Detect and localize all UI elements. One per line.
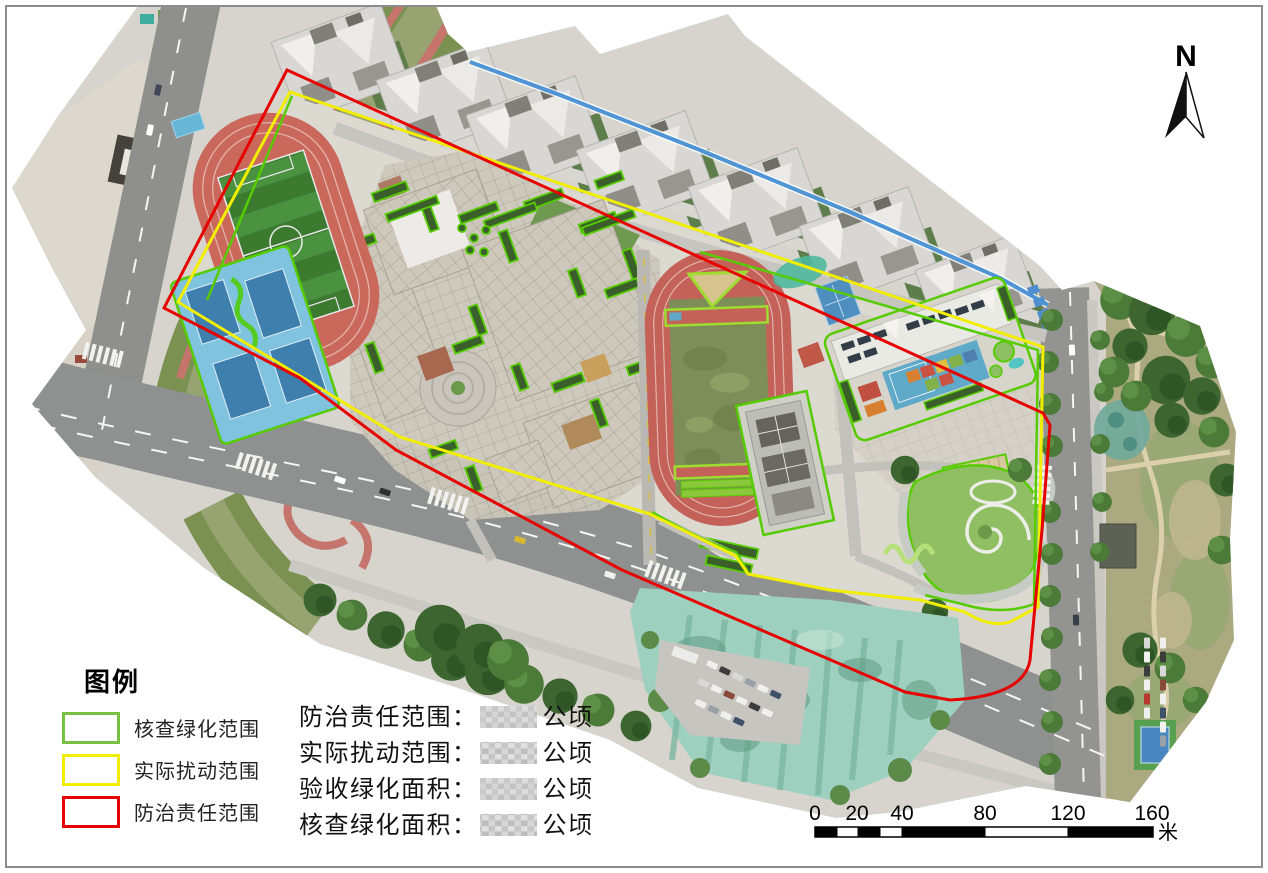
stat-row-verified-greening: 核查绿化面积：公顷 — [299, 808, 594, 844]
scale-tick: 120 — [1050, 802, 1085, 825]
area-statistics: 防治责任范围：公顷 实际扰动范围：公顷 验收绿化面积：公顷 核查绿化面积：公顷 — [299, 700, 594, 844]
censored-value — [480, 814, 537, 836]
scale-bar: 0 20 40 80 120 160 米 — [809, 802, 1178, 844]
stat-row-accepted-greening: 验收绿化面积：公顷 — [299, 772, 594, 808]
stat-label: 核查绿化面积： — [299, 813, 478, 839]
legend: 图例 核查绿化范围 实际扰动范围 防治责任范围 — [62, 662, 260, 839]
stat-label: 实际扰动范围： — [299, 741, 478, 767]
legend-item-label: 防治责任范围 — [134, 797, 260, 826]
responsibility-swatch — [62, 796, 120, 828]
stat-unit: 公顷 — [543, 813, 594, 839]
north-arrow: N — [1165, 40, 1204, 138]
legend-item-responsibility: 防治责任范围 — [62, 797, 260, 826]
disturbance-swatch — [62, 754, 120, 786]
stat-unit: 公顷 — [543, 705, 594, 731]
censored-value — [480, 778, 537, 800]
scale-tick: 0 — [809, 802, 821, 825]
censored-value — [480, 706, 537, 728]
stat-label: 验收绿化面积： — [299, 777, 478, 803]
scale-tick: 40 — [890, 802, 913, 825]
stat-label: 防治责任范围： — [299, 705, 478, 731]
scale-bar-segments — [815, 827, 1153, 837]
legend-item-verified-greening: 核查绿化范围 — [62, 713, 260, 742]
stat-unit: 公顷 — [543, 741, 594, 767]
north-label: N — [1175, 40, 1197, 73]
scale-unit: 米 — [1158, 821, 1178, 844]
greening-swatch — [62, 712, 120, 744]
stat-row-disturbance: 实际扰动范围：公顷 — [299, 736, 594, 772]
stat-row-responsibility: 防治责任范围：公顷 — [299, 700, 594, 736]
park — [1094, 280, 1243, 802]
stat-unit: 公顷 — [543, 777, 594, 803]
legend-title: 图例 — [84, 662, 260, 699]
map-page: N 0 20 40 80 120 160 米 图例 核查绿化范围 实际扰动范围 — [0, 0, 1268, 873]
legend-item-label: 核查绿化范围 — [134, 713, 260, 742]
legend-item-actual-disturbance: 实际扰动范围 — [62, 755, 260, 784]
scale-tick: 20 — [845, 802, 868, 825]
legend-item-label: 实际扰动范围 — [134, 755, 260, 784]
censored-value — [480, 742, 537, 764]
scale-tick: 80 — [973, 802, 996, 825]
